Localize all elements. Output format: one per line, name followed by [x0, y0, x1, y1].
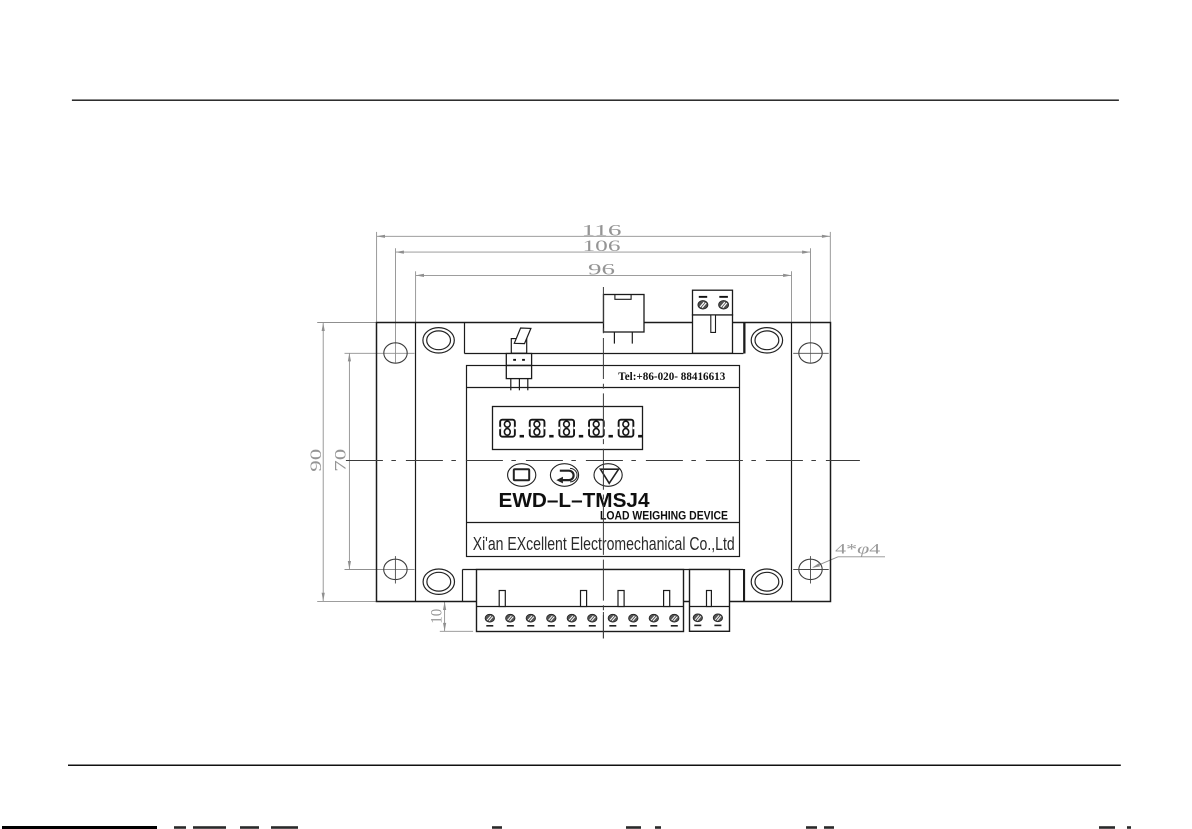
svg-text:106: 106 — [583, 238, 621, 255]
svg-text:96: 96 — [588, 262, 615, 279]
svg-text:EWD–L–TMSJ4: EWD–L–TMSJ4 — [499, 489, 651, 512]
svg-text:10: 10 — [429, 609, 446, 624]
svg-text:LOAD WEIGHING DEVICE: LOAD WEIGHING DEVICE — [600, 511, 728, 523]
svg-text:116: 116 — [582, 222, 622, 239]
svg-text:4*φ4: 4*φ4 — [835, 542, 881, 558]
svg-text:Tel:+86-020- 88416613: Tel:+86-020- 88416613 — [618, 371, 725, 383]
svg-text:90: 90 — [308, 449, 325, 472]
